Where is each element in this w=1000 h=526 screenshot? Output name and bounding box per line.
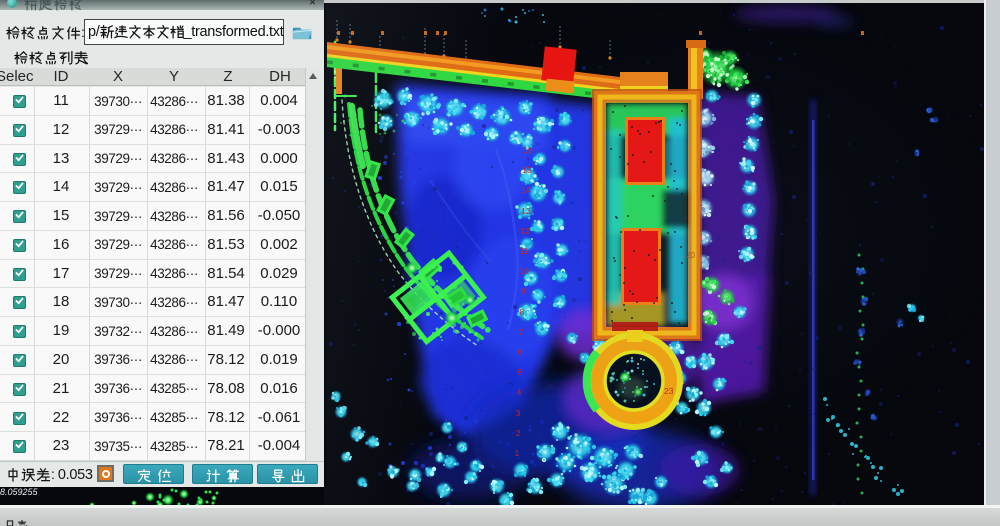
svg-text:12: 12 xyxy=(520,226,530,236)
svg-text:9: 9 xyxy=(521,286,526,296)
svg-text:3: 3 xyxy=(516,408,521,418)
svg-text:6: 6 xyxy=(518,347,523,357)
svg-text:1: 1 xyxy=(515,448,520,458)
svg-text:20: 20 xyxy=(686,251,695,260)
svg-text:2: 2 xyxy=(516,428,521,438)
svg-text:11: 11 xyxy=(520,246,529,256)
svg-text:14: 14 xyxy=(521,185,531,195)
svg-text:8: 8 xyxy=(520,307,525,317)
svg-text:23: 23 xyxy=(664,386,674,396)
svg-text:15: 15 xyxy=(522,165,532,175)
svg-text:13: 13 xyxy=(521,206,531,216)
svg-text:4: 4 xyxy=(517,387,522,397)
svg-text:10: 10 xyxy=(519,266,529,276)
svg-text:7: 7 xyxy=(519,327,524,337)
svg-text:5: 5 xyxy=(518,367,523,377)
svg-text:16: 16 xyxy=(523,145,533,155)
